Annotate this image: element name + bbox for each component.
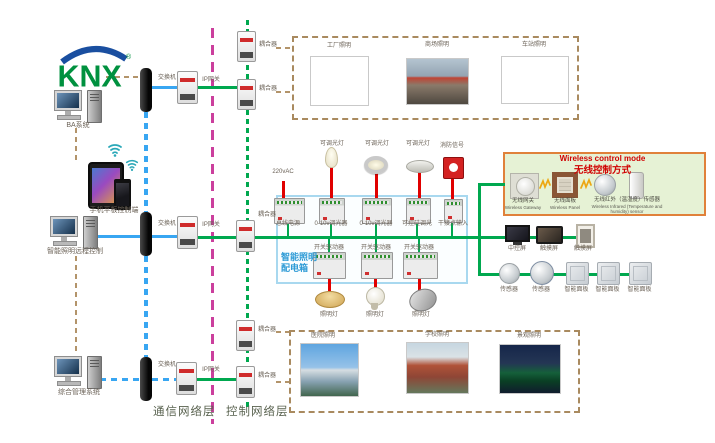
line-coupler — [236, 366, 255, 398]
photo-label: 车站照明 — [512, 42, 556, 49]
knx-bus — [478, 183, 481, 276]
spotlight-icon — [406, 285, 439, 315]
network-switch — [140, 212, 152, 256]
ip-gateway — [177, 216, 198, 249]
power-line — [418, 171, 421, 200]
dry-contact-module — [444, 199, 463, 223]
sensor-label: 传感器 — [496, 287, 522, 294]
lan-backbone — [144, 112, 148, 212]
lan-link — [152, 86, 179, 89]
wireless-ir-sensor-icon — [594, 174, 616, 196]
touch-panel-icon — [576, 224, 595, 248]
photo-label: 商场照明 — [415, 42, 459, 49]
wireless-title-zh: 无线控制方式 — [505, 162, 700, 176]
smart-panel-icon — [597, 262, 620, 285]
computer-label: BA系统 — [48, 122, 108, 130]
pc-tower — [87, 90, 102, 123]
coupler-label: 耦合器 — [254, 212, 280, 219]
module-label: 可控硅调光 — [397, 221, 437, 228]
switch-label: 交换机 — [154, 362, 180, 369]
module-label: 0-10v调光器 — [353, 221, 399, 228]
connector-line — [276, 381, 289, 383]
mall-photo — [406, 58, 469, 105]
pc-tower — [83, 216, 98, 249]
dimmable-lamp-label: 可调光灯 — [357, 141, 397, 148]
knx-logo: KNX ® — [56, 36, 132, 94]
wireless-gateway-icon — [510, 173, 539, 199]
module-label: 总线电源 — [268, 221, 308, 228]
connector-line — [75, 256, 77, 354]
line-coupler — [236, 320, 255, 351]
coupler-label: 耦合器 — [254, 327, 280, 334]
lamp-label: 照明灯 — [355, 312, 395, 319]
monitor — [54, 90, 82, 111]
module-label: 0-10v调光器 — [308, 221, 354, 228]
station-photo — [501, 56, 569, 104]
panel-label: 智能面板 — [561, 287, 592, 294]
photo-label: 工厂照明 — [317, 43, 361, 50]
knx-bus — [194, 86, 240, 89]
landscape-photo — [499, 344, 561, 394]
bulb-icon — [366, 287, 385, 306]
photo-label: 学校照明 — [415, 332, 459, 339]
power-line — [451, 179, 454, 200]
dimmable-lamp-label: 可调光灯 — [312, 141, 352, 148]
lan-link — [152, 235, 179, 238]
central-screen-icon — [505, 225, 530, 242]
lan-link — [98, 235, 142, 238]
cabinet-title: 智能照明 配电箱 — [281, 252, 317, 274]
actuator-label: 开关驱动器 — [399, 245, 439, 252]
switch-label: 交换机 — [154, 75, 180, 82]
actuator-label: 开关驱动器 — [309, 245, 349, 252]
ctrl-layer-label: 控制网络层 — [226, 403, 289, 419]
gateway-label: IP网关 — [197, 77, 225, 84]
switch-actuator-module — [313, 252, 346, 279]
monitor — [54, 356, 82, 377]
lamp-label: 照明灯 — [309, 312, 349, 319]
photo-label: 景观照明 — [507, 333, 551, 340]
power-line — [375, 171, 378, 200]
switch-actuator-module — [361, 252, 393, 279]
phone-device — [114, 179, 131, 210]
network-switch — [140, 68, 152, 112]
line-coupler — [237, 79, 256, 110]
computer-label: 智能照明远程控制 — [30, 248, 120, 256]
panel-label: 智能面板 — [592, 287, 623, 294]
fire-signal-label: 消防信号 — [432, 143, 472, 150]
module-label: 干接点输入 — [433, 221, 473, 228]
screen-label: 中控屏 — [504, 246, 530, 253]
knx-bus — [480, 183, 505, 186]
wireless-gateway-label: 无线网关 Wireless Gateway — [498, 198, 548, 210]
pc-tower — [87, 356, 102, 389]
coupler-label: 耦合器 — [255, 42, 281, 49]
knx-bus-backbone — [246, 250, 249, 322]
knx-logo-graphic: KNX — [56, 36, 132, 94]
rf-signal-icon — [539, 177, 551, 191]
network-switch — [140, 357, 152, 401]
svg-text:KNX: KNX — [58, 59, 122, 93]
gateway-label: IP网关 — [197, 367, 225, 374]
downlight-icon — [364, 156, 388, 174]
registered-mark: ® — [126, 54, 131, 61]
smart-panel-icon — [566, 262, 589, 285]
wifi-icon — [106, 142, 124, 158]
line-coupler — [237, 31, 256, 62]
smart-panel-icon — [629, 262, 652, 285]
sensor-icon — [499, 263, 520, 284]
computer-label: 综合管理系统 — [44, 389, 114, 397]
monitor — [50, 216, 78, 237]
switch-label: 交换机 — [154, 221, 180, 228]
connector-line — [75, 128, 77, 160]
power-line — [328, 277, 331, 291]
photo-label: 医院照明 — [301, 333, 345, 340]
line-coupler — [236, 220, 255, 252]
screen-label: 触摸屏 — [570, 246, 596, 253]
screen-label: 触摸屏 — [536, 246, 562, 253]
rf-signal-icon — [580, 177, 592, 191]
comm-layer-label: 通信网络层 — [153, 403, 216, 419]
gateway-label: IP网关 — [197, 222, 225, 229]
power-label: 220vAC — [268, 169, 298, 176]
ip-gateway — [177, 71, 198, 104]
wireless-panel-label: 无线面板 Wireless Panel — [546, 198, 584, 210]
ceiling-light-icon — [315, 291, 345, 308]
lan-link — [100, 378, 141, 381]
lan-backbone — [144, 256, 148, 357]
knx-lighting-system-diagram: KNX ® BA系统 智能照明远程控制 综合管理系统 手机平板控制端 交换机 交… — [0, 0, 715, 443]
factory-photo — [310, 56, 369, 106]
coupler-label: 耦合器 — [254, 373, 280, 380]
panel-label: 智能面板 — [624, 287, 655, 294]
knx-bus — [195, 378, 238, 381]
fire-alarm-icon — [443, 157, 464, 179]
sensor-label: 传感器 — [528, 287, 554, 294]
wireless-th-sensor-icon — [629, 172, 644, 199]
actuator-label: 开关驱动器 — [356, 245, 396, 252]
lamp-label: 照明灯 — [401, 312, 441, 319]
touch-screen-icon — [536, 226, 563, 244]
coupler-label: 耦合器 — [255, 86, 281, 93]
dimmable-lamp-icon — [325, 147, 338, 168]
sensor-icon — [530, 261, 554, 285]
switch-actuator-module — [403, 252, 438, 279]
school-photo — [406, 342, 469, 394]
central-screen-stand — [513, 242, 522, 245]
wireless-sensor-label: 无线红外（温湿度）传感器 Wireless Infrared (Temperat… — [586, 197, 668, 214]
lan-link — [152, 378, 178, 381]
ceiling-lamp-icon — [406, 160, 434, 173]
wifi-icon — [124, 158, 140, 172]
hospital-photo — [300, 343, 359, 397]
power-line — [330, 167, 333, 200]
mobile-label: 手机平板控制端 — [78, 207, 150, 215]
